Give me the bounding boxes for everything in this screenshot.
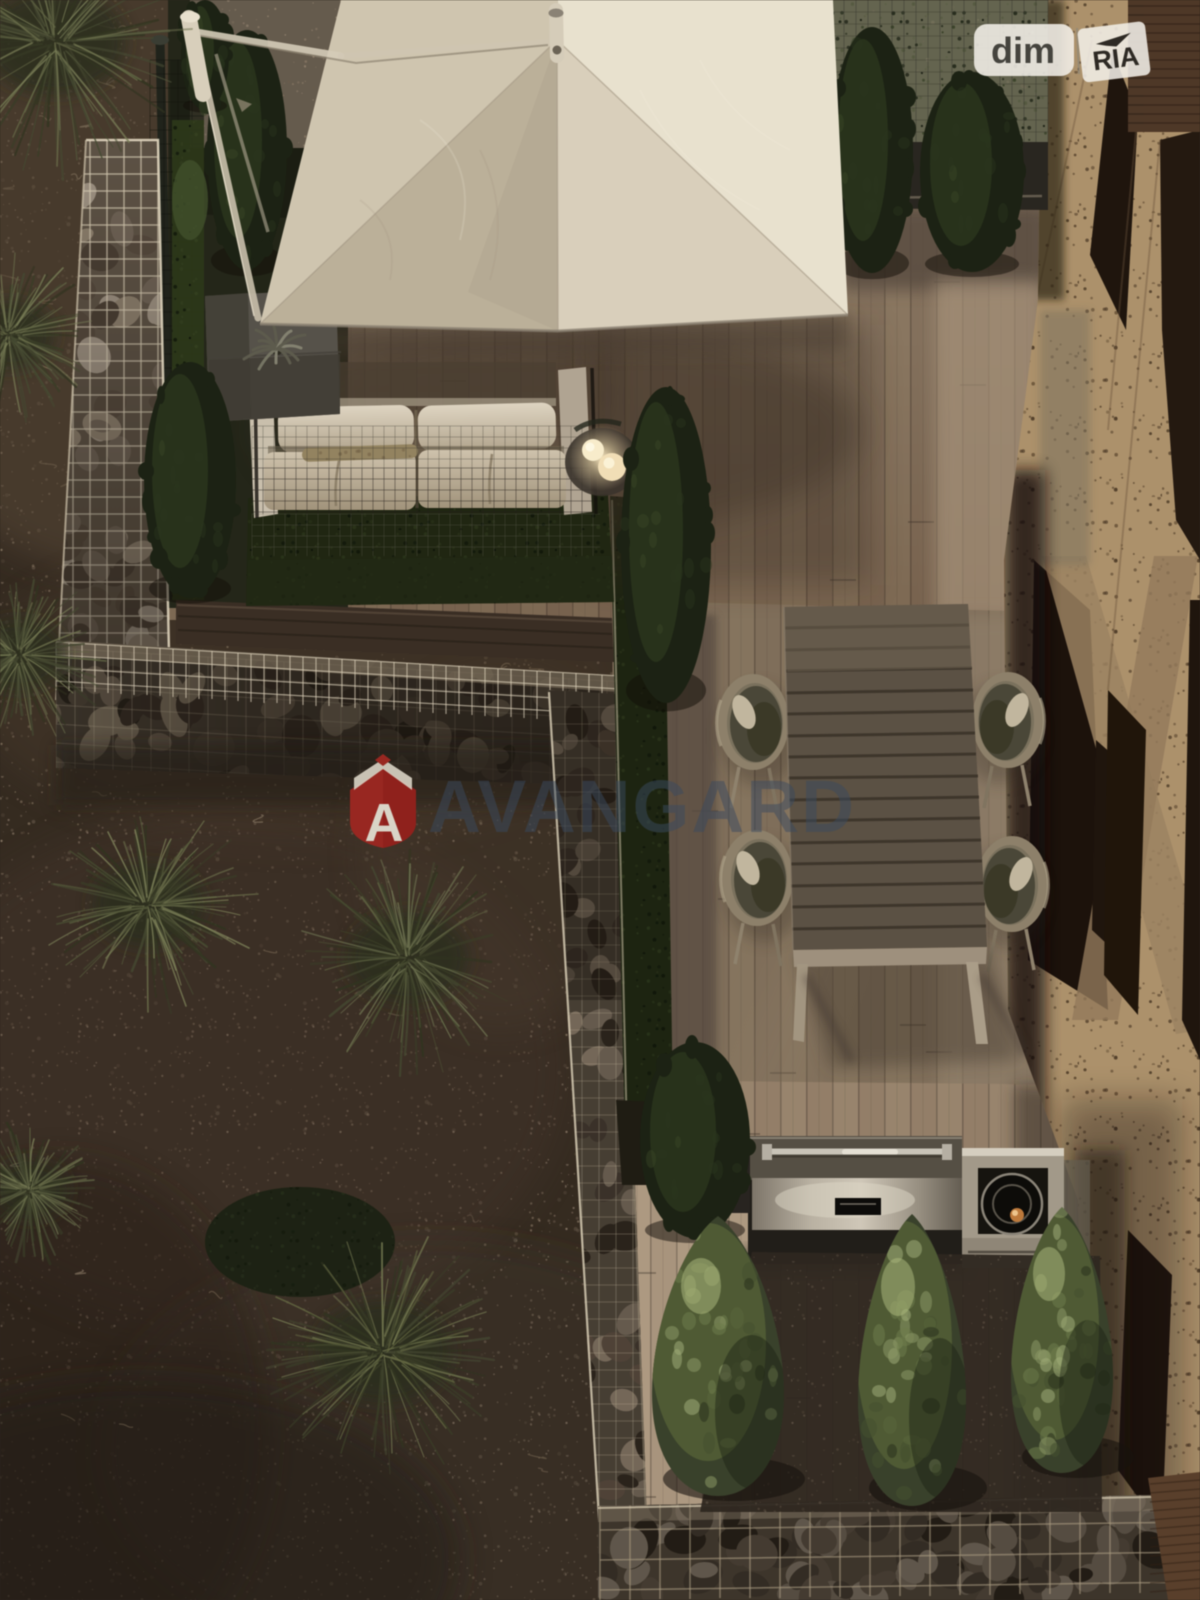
svg-text:dim: dim — [991, 30, 1055, 71]
svg-text:AVANGARD: AVANGARD — [428, 765, 856, 848]
svg-text:RIA: RIA — [1091, 41, 1141, 76]
svg-text:A: A — [365, 793, 404, 853]
